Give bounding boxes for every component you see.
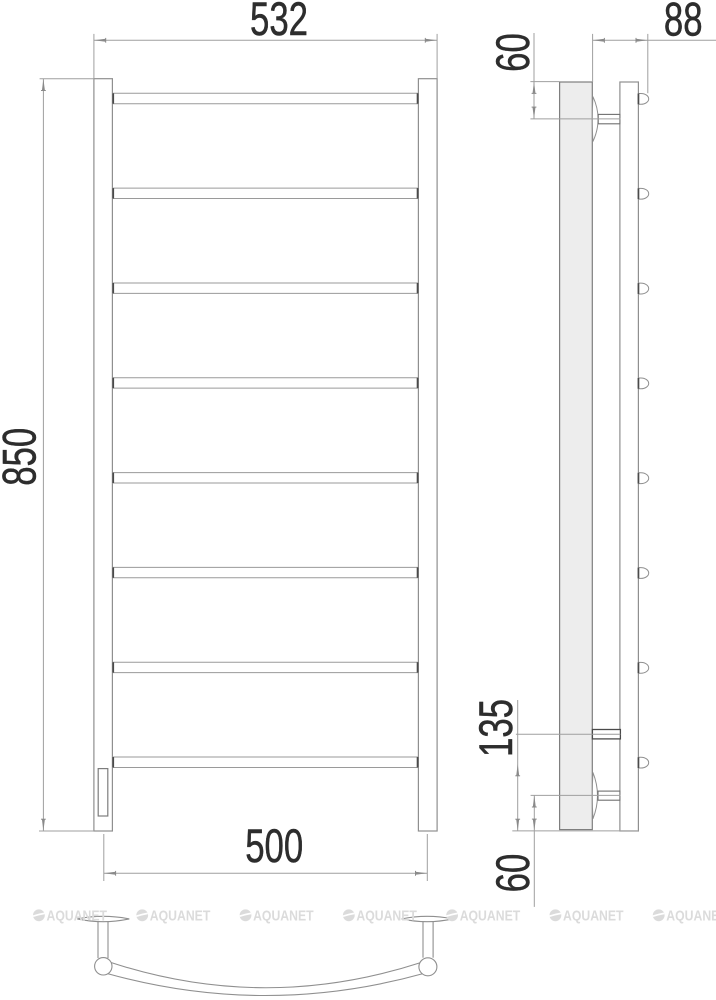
svg-text:AQUANET: AQUANET bbox=[47, 908, 108, 924]
svg-text:AQUANET: AQUANET bbox=[253, 908, 314, 924]
svg-text:60: 60 bbox=[487, 33, 539, 72]
svg-text:532: 532 bbox=[250, 0, 308, 45]
svg-text:AQUANET: AQUANET bbox=[666, 908, 716, 924]
svg-text:AQUANET: AQUANET bbox=[356, 908, 417, 924]
svg-text:135: 135 bbox=[470, 699, 522, 757]
svg-text:850: 850 bbox=[0, 428, 46, 486]
svg-text:60: 60 bbox=[487, 854, 539, 893]
svg-text:AQUANET: AQUANET bbox=[563, 908, 624, 924]
svg-text:AQUANET: AQUANET bbox=[460, 908, 521, 924]
svg-text:AQUANET: AQUANET bbox=[150, 908, 211, 924]
svg-text:88: 88 bbox=[664, 0, 703, 46]
svg-text:500: 500 bbox=[245, 820, 303, 872]
